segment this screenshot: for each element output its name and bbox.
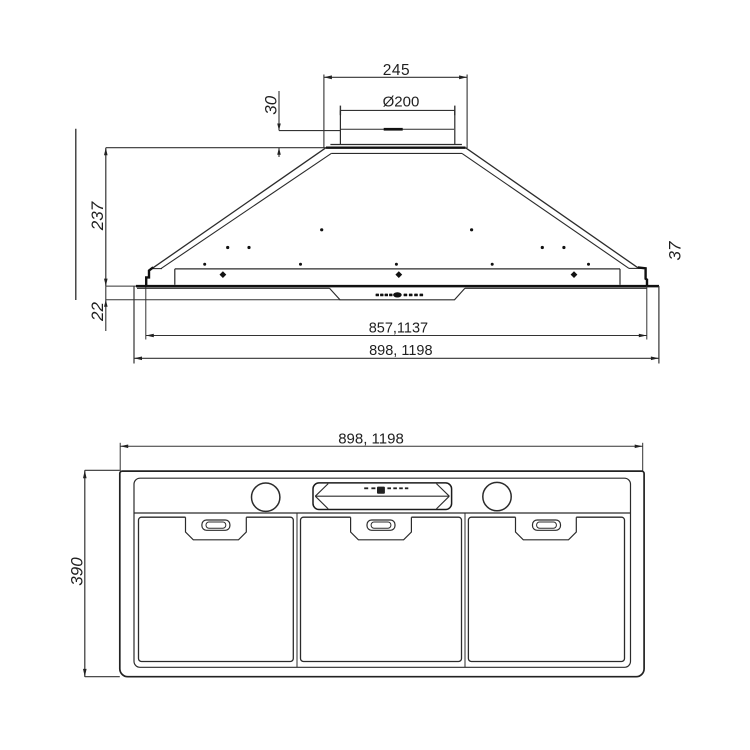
svg-text:30: 30 [262,95,281,114]
svg-text:245: 245 [383,62,410,79]
svg-text:37: 37 [666,241,685,260]
svg-text:22: 22 [88,302,107,322]
svg-text:237: 237 [88,201,107,231]
svg-text:898, 1198: 898, 1198 [369,343,432,359]
svg-text:898, 1198: 898, 1198 [338,431,404,448]
svg-text:857,1137: 857,1137 [369,320,428,336]
svg-text:Ø200: Ø200 [383,94,420,111]
svg-text:390: 390 [68,557,87,586]
